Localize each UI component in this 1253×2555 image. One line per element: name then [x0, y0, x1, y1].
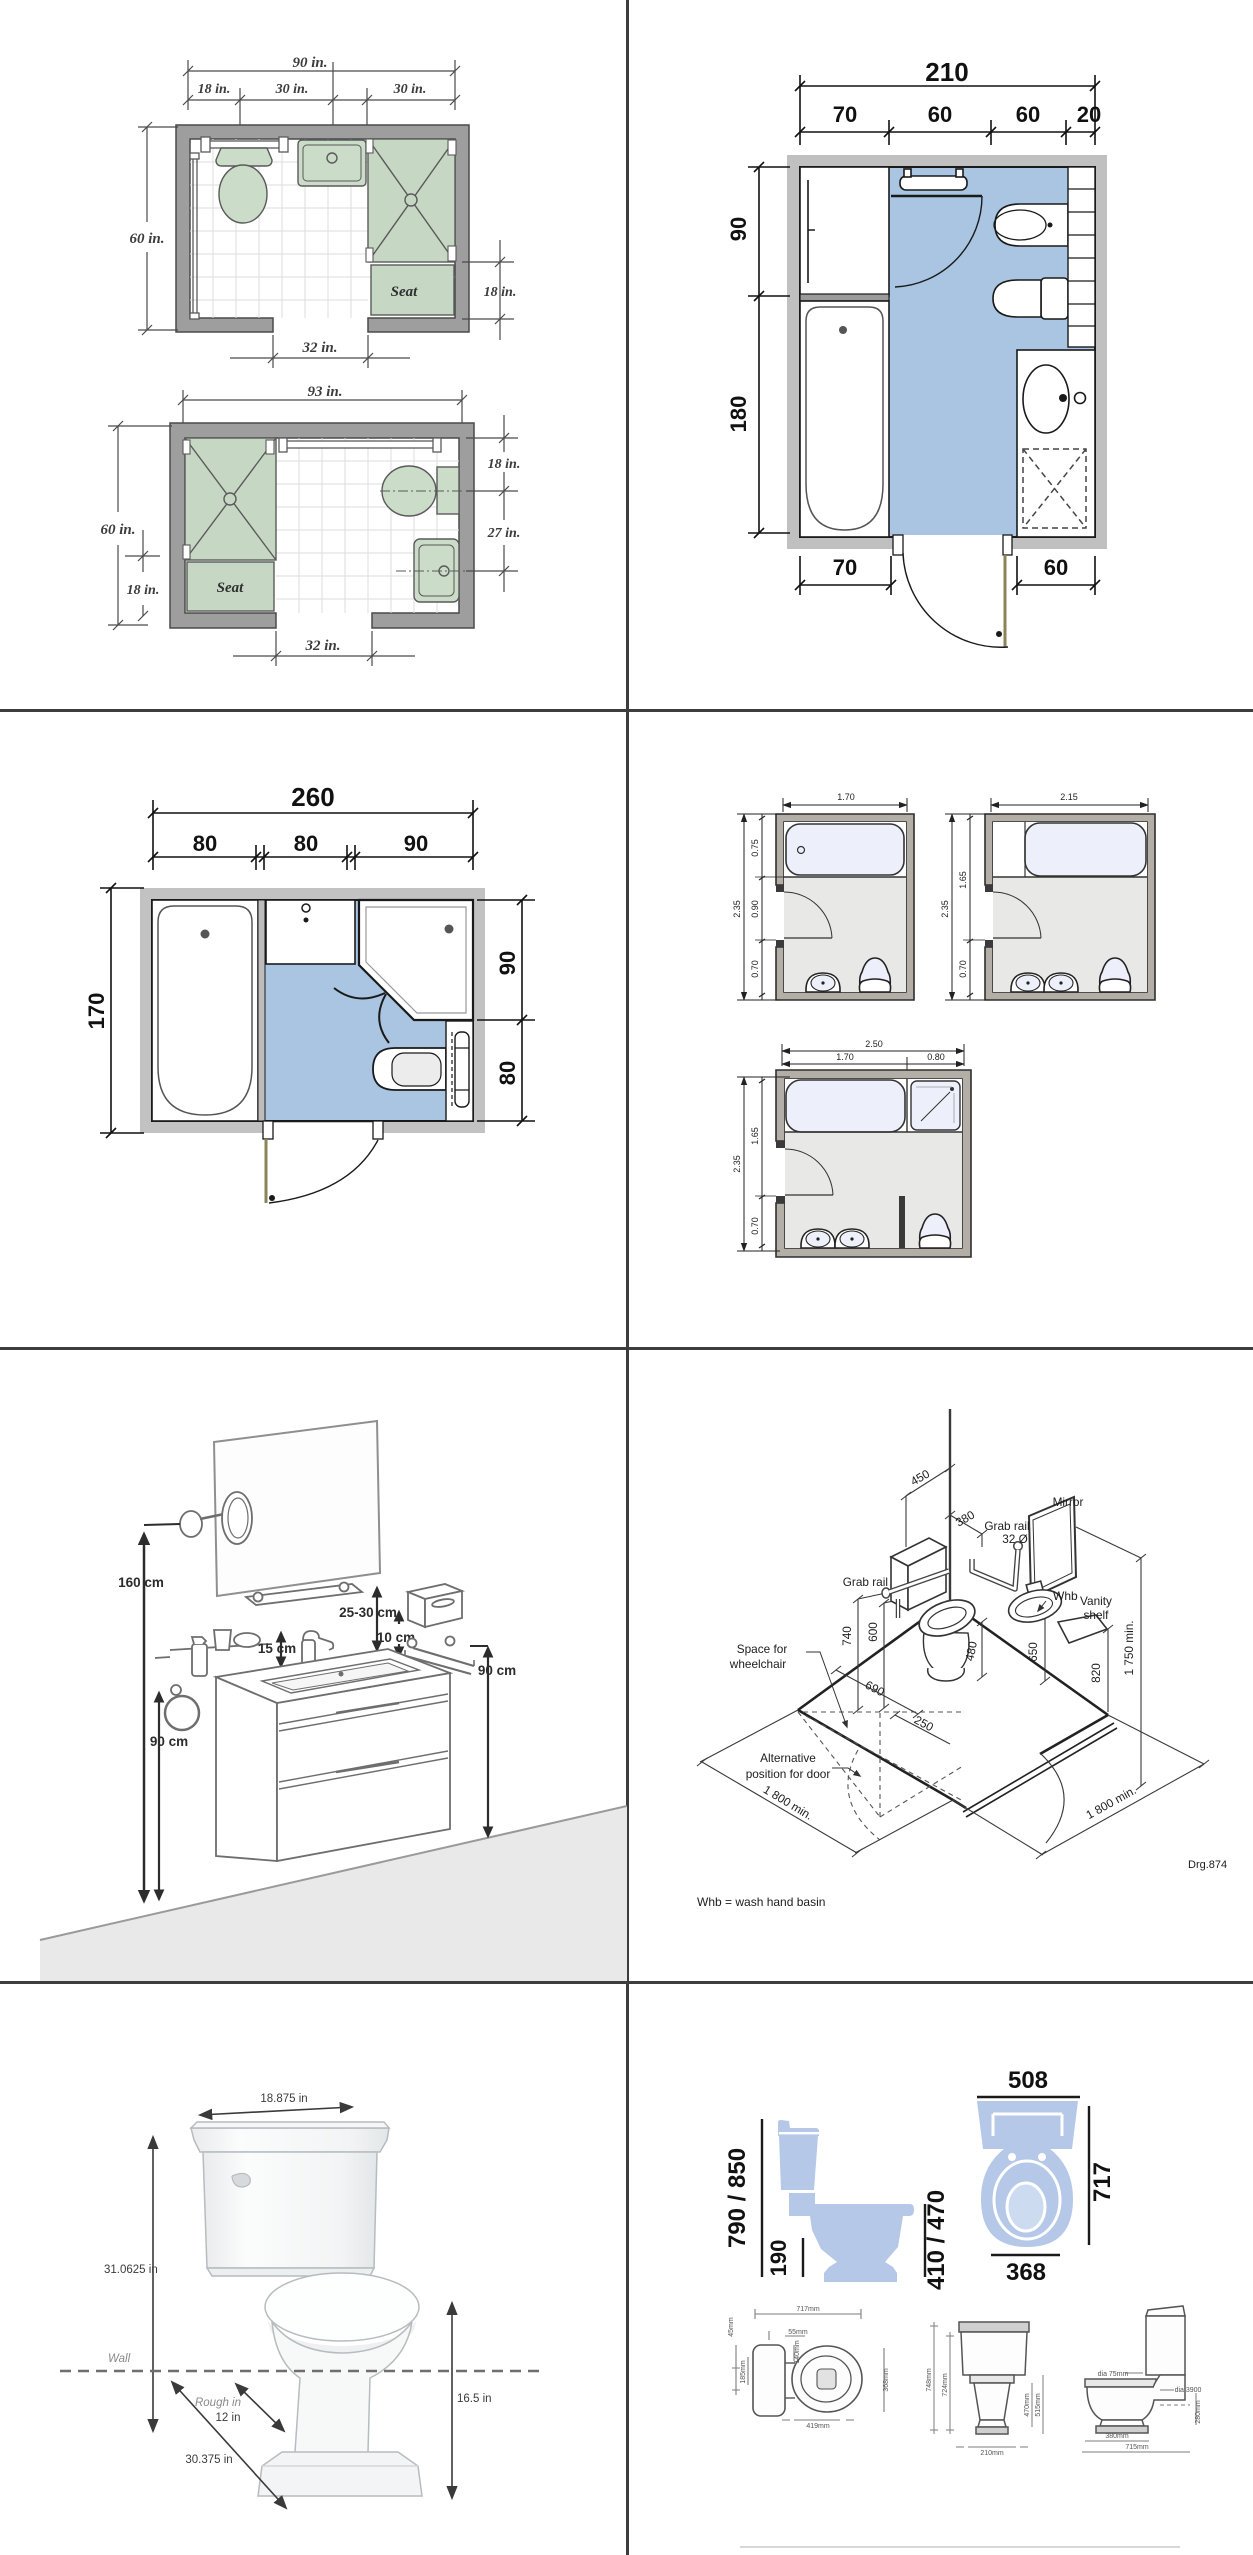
- svg-text:2.50: 2.50: [865, 1039, 883, 1049]
- svg-text:410 / 470: 410 / 470: [923, 2190, 950, 2290]
- svg-text:260: 260: [291, 782, 334, 812]
- svg-text:30 in.: 30 in.: [275, 82, 309, 97]
- svg-text:60 in.: 60 in.: [100, 522, 135, 538]
- svg-text:717: 717: [1089, 2162, 1116, 2202]
- svg-text:Whb: Whb: [1053, 1589, 1078, 1603]
- svg-text:60 in.: 60 in.: [129, 231, 164, 247]
- svg-text:18 in.: 18 in.: [488, 457, 521, 472]
- svg-text:30.375 in: 30.375 in: [185, 2454, 232, 2466]
- svg-text:170: 170: [84, 993, 109, 1030]
- svg-text:15 cm: 15 cm: [258, 1641, 296, 1656]
- svg-text:60: 60: [1016, 102, 1040, 127]
- svg-text:80: 80: [495, 1061, 520, 1085]
- svg-text:1.65: 1.65: [750, 1127, 760, 1145]
- svg-text:27 in.: 27 in.: [487, 526, 521, 541]
- svg-text:368: 368: [1006, 2259, 1046, 2286]
- svg-text:wheelchair: wheelchair: [729, 1657, 786, 1671]
- svg-text:80: 80: [294, 831, 318, 856]
- svg-text:Grab rail: Grab rail: [984, 1519, 1029, 1533]
- svg-text:650: 650: [1026, 1642, 1040, 1662]
- svg-text:Alternative: Alternative: [760, 1751, 816, 1765]
- svg-text:30 in.: 30 in.: [393, 82, 427, 97]
- svg-text:368mm: 368mm: [883, 2368, 890, 2392]
- svg-text:18 in.: 18 in.: [127, 583, 160, 598]
- svg-text:380: 380: [953, 1507, 977, 1529]
- svg-text:Rough in: Rough in: [195, 2397, 241, 2409]
- svg-text:32 in.: 32 in.: [304, 638, 340, 654]
- svg-text:210: 210: [925, 57, 968, 87]
- svg-text:0.70: 0.70: [958, 960, 968, 978]
- svg-text:508: 508: [1008, 2067, 1048, 2094]
- svg-text:600: 600: [866, 1622, 880, 1642]
- svg-text:55mm: 55mm: [788, 2329, 808, 2336]
- svg-text:93 in.: 93 in.: [307, 384, 342, 400]
- svg-text:1 750 min.: 1 750 min.: [1122, 1620, 1136, 1675]
- svg-text:45mm: 45mm: [728, 2317, 735, 2337]
- svg-text:80: 80: [193, 831, 217, 856]
- svg-text:18 in.: 18 in.: [198, 82, 231, 97]
- svg-text:0.80: 0.80: [927, 1052, 945, 1062]
- svg-text:1.65: 1.65: [958, 871, 968, 889]
- svg-text:Whb = wash hand basin: Whb = wash hand basin: [697, 1895, 825, 1909]
- svg-text:515mm: 515mm: [1035, 2393, 1042, 2417]
- svg-text:2.35: 2.35: [940, 900, 950, 918]
- svg-text:20: 20: [1077, 102, 1101, 127]
- svg-text:32 in.: 32 in.: [301, 340, 337, 356]
- svg-text:0.70: 0.70: [750, 1217, 760, 1235]
- svg-text:Wall: Wall: [108, 2353, 131, 2365]
- svg-text:0.75: 0.75: [750, 839, 760, 857]
- svg-text:dia 75mm: dia 75mm: [1098, 2371, 1129, 2378]
- svg-text:Seat: Seat: [391, 284, 419, 300]
- svg-text:Drg.874: Drg.874: [1188, 1859, 1227, 1871]
- svg-text:740: 740: [840, 1626, 854, 1646]
- svg-text:820: 820: [1089, 1663, 1103, 1683]
- svg-text:0.90: 0.90: [750, 900, 760, 918]
- svg-text:70: 70: [833, 102, 857, 127]
- svg-text:18 in.: 18 in.: [484, 285, 517, 300]
- svg-text:16.5 in: 16.5 in: [457, 2393, 492, 2405]
- svg-text:715mm: 715mm: [1125, 2444, 1149, 2451]
- svg-text:190: 190: [766, 2240, 791, 2277]
- svg-text:380mm: 380mm: [1105, 2433, 1129, 2440]
- svg-text:12 in: 12 in: [216, 2412, 241, 2424]
- svg-text:Space for: Space for: [737, 1642, 788, 1656]
- svg-text:160 cm: 160 cm: [118, 1575, 164, 1590]
- svg-text:1 800 min.: 1 800 min.: [761, 1782, 815, 1822]
- svg-text:25-30 cm: 25-30 cm: [339, 1605, 397, 1620]
- svg-text:419mm: 419mm: [806, 2423, 830, 2430]
- svg-text:60: 60: [1044, 555, 1068, 580]
- svg-text:90 in.: 90 in.: [292, 55, 327, 71]
- svg-text:1.70: 1.70: [837, 792, 855, 802]
- svg-text:717mm: 717mm: [796, 2306, 820, 2313]
- svg-text:dia 3900: dia 3900: [1175, 2387, 1202, 2394]
- svg-text:2.35: 2.35: [732, 900, 742, 918]
- svg-text:0.70: 0.70: [750, 960, 760, 978]
- svg-text:Vanity: Vanity: [1080, 1594, 1112, 1608]
- svg-text:90 cm: 90 cm: [478, 1663, 516, 1678]
- svg-text:60: 60: [928, 102, 952, 127]
- svg-text:90 cm: 90 cm: [150, 1734, 188, 1749]
- svg-text:2.15: 2.15: [1060, 792, 1078, 802]
- svg-text:790 / 850: 790 / 850: [724, 2148, 751, 2248]
- svg-text:210mm: 210mm: [980, 2450, 1004, 2457]
- svg-text:32 Ø: 32 Ø: [1002, 1532, 1028, 1546]
- svg-text:185mm: 185mm: [740, 2360, 747, 2384]
- svg-text:18.875 in: 18.875 in: [260, 2093, 307, 2105]
- svg-text:280mm: 280mm: [1195, 2400, 1202, 2424]
- svg-text:180: 180: [726, 396, 751, 433]
- svg-text:748mm: 748mm: [926, 2368, 933, 2392]
- svg-text:Seat: Seat: [217, 580, 245, 596]
- svg-text:2.35: 2.35: [732, 1155, 742, 1173]
- svg-text:70: 70: [833, 555, 857, 580]
- svg-text:31.0625 in: 31.0625 in: [104, 2264, 158, 2276]
- svg-text:90: 90: [404, 831, 428, 856]
- svg-text:140mm: 140mm: [794, 2340, 801, 2364]
- svg-text:450: 450: [908, 1466, 932, 1488]
- svg-text:position for door: position for door: [746, 1767, 831, 1781]
- svg-text:shelf: shelf: [1084, 1608, 1110, 1622]
- svg-text:470mm: 470mm: [1024, 2393, 1031, 2417]
- svg-text:Mirror: Mirror: [1053, 1495, 1084, 1509]
- svg-text:1.70: 1.70: [836, 1052, 854, 1062]
- svg-text:Grab rail: Grab rail: [843, 1575, 888, 1589]
- svg-text:724mm: 724mm: [942, 2373, 949, 2397]
- svg-text:480: 480: [962, 1640, 980, 1663]
- svg-text:90: 90: [495, 951, 520, 975]
- svg-text:90: 90: [726, 217, 751, 241]
